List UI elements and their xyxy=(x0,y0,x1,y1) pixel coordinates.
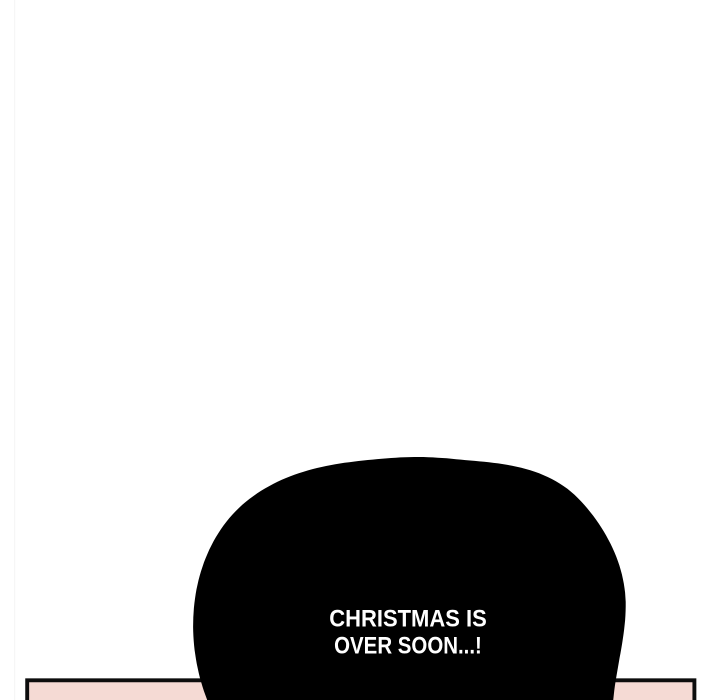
svg-text:CHRISTMAS IS: CHRISTMAS IS xyxy=(329,606,487,633)
svg-text:OVER SOON...!: OVER SOON...! xyxy=(334,633,482,660)
